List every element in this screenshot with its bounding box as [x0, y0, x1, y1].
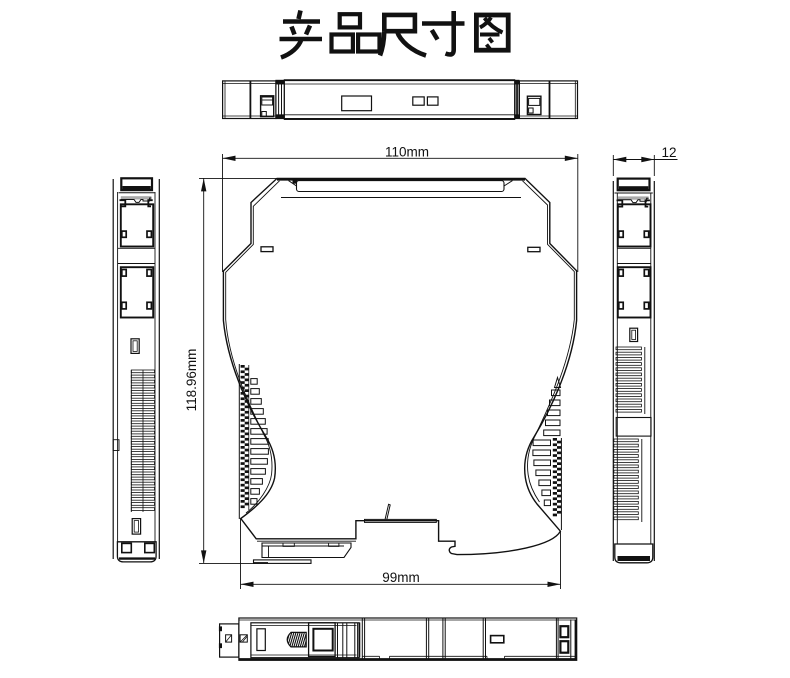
svg-text:110mm: 110mm — [385, 145, 429, 160]
svg-text:118.96mm: 118.96mm — [184, 349, 199, 412]
svg-text:99mm: 99mm — [382, 570, 420, 585]
svg-text:12: 12 — [661, 145, 676, 160]
